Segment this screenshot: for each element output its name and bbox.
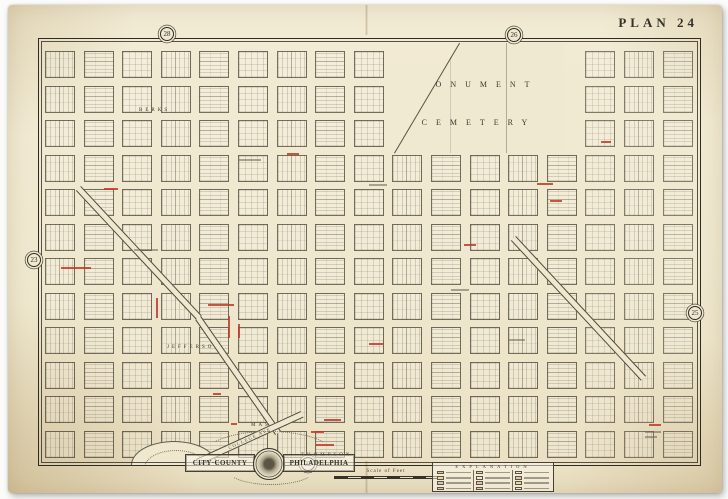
city-block [663,189,693,216]
city-block [277,293,307,320]
city-block [199,258,229,285]
red-annotation [369,343,383,345]
city-block [122,362,152,389]
city-block [84,155,114,182]
city-block [199,51,229,78]
city-block [238,189,268,216]
city-block [585,155,615,182]
building-label [239,159,261,161]
city-block [84,51,114,78]
city-block [161,224,191,251]
city-block [392,362,422,389]
city-block [84,293,114,320]
city-block [238,224,268,251]
legend-entry [515,471,549,475]
city-block [585,396,615,423]
red-annotation [464,244,476,246]
city-block [238,120,268,147]
city-block [315,224,345,251]
city-block [277,86,307,113]
city-block [547,189,577,216]
city-block [470,189,500,216]
legend-swatch [437,471,444,475]
city-block [277,224,307,251]
legend-swatch [515,481,522,485]
city-block [663,120,693,147]
city-block [663,155,693,182]
city-block [585,224,615,251]
city-block [315,51,345,78]
red-annotation [104,188,118,190]
adjacent-plate-25: 25 [688,306,702,320]
city-block [45,51,75,78]
scale-bar [334,476,438,479]
cartouche-city-county: CITY·COUNTY [186,455,254,471]
philadelphia-seal [253,448,285,480]
city-block [431,396,461,423]
city-block [277,362,307,389]
city-block [354,155,384,182]
legend-entry-text [446,477,471,479]
city-block [663,327,693,354]
scale-label: Scale of Feet [334,469,438,474]
city-block [277,155,307,182]
city-block [238,51,268,78]
legend-swatch [476,471,483,475]
city-block [392,327,422,354]
legend-entry [476,481,510,485]
legend-swatch [476,487,483,491]
city-block [161,155,191,182]
red-annotation [601,141,611,143]
city-block [238,293,268,320]
building-label [645,431,661,433]
city-block [508,189,538,216]
city-block [392,431,422,458]
legend-entry [515,481,549,485]
city-block [624,396,654,423]
city-block [663,362,693,389]
cemetery-label-line2: CEMETERY [394,118,564,127]
city-block [508,155,538,182]
legend-entry [437,476,471,480]
city-block [508,431,538,458]
city-block [354,293,384,320]
legend-columns [435,470,551,491]
adjacent-plate-26: 26 [507,28,521,42]
city-block [84,396,114,423]
city-block [585,51,615,78]
city-block [199,155,229,182]
city-block [547,327,577,354]
red-annotation [208,304,234,306]
city-block [315,189,345,216]
legend-column [513,470,551,491]
legend-column [474,470,513,491]
city-block [122,51,152,78]
legend-swatch [515,471,522,475]
city-block [508,396,538,423]
city-block [431,189,461,216]
city-block [277,120,307,147]
red-annotation [231,423,237,425]
city-block [392,396,422,423]
city-block [547,362,577,389]
paper-fold-crease [365,5,368,35]
legend-entry [476,487,510,491]
city-block [199,362,229,389]
building-label [451,289,469,291]
red-annotation [238,324,240,338]
city-block [547,396,577,423]
city-block [84,86,114,113]
city-block [315,293,345,320]
city-block [470,224,500,251]
legend-swatch [476,481,483,485]
city-block [45,155,75,182]
red-annotation [61,267,91,269]
city-block [354,189,384,216]
city-block [392,155,422,182]
city-block [199,396,229,423]
city-block [431,293,461,320]
cemetery-label-line1: MONUMENT [394,80,564,89]
city-block [547,224,577,251]
city-block [45,362,75,389]
legend-swatch [437,476,444,480]
legend-entry-text [485,482,510,484]
legend-entry-text [446,488,471,490]
city-block [663,86,693,113]
city-block [277,258,307,285]
city-block [624,155,654,182]
city-block [354,224,384,251]
city-block [624,258,654,285]
red-annotation [311,431,324,433]
building-label [134,249,158,251]
city-block [585,258,615,285]
legend-entry [476,476,510,480]
city-block [45,189,75,216]
city-block [84,327,114,354]
city-block [470,362,500,389]
city-block [547,431,577,458]
legend-entry [476,471,510,475]
city-block [45,431,75,458]
red-annotation [228,316,230,338]
city-block [315,155,345,182]
atlas-scan: PLAN 24 MONUMENT CEMETERY BERKS JEFFERSO… [0,0,728,499]
legend-entry-text [524,472,549,474]
city-block [585,362,615,389]
red-annotation [316,444,334,446]
city-block [354,327,384,354]
city-block [238,258,268,285]
legend-entry-text [485,477,510,479]
map-frame: MONUMENT CEMETERY BERKS JEFFERSON MASTER… [38,38,701,466]
city-block [199,224,229,251]
red-annotation [213,393,221,395]
adjacent-plate-23: 23 [27,253,41,267]
city-block [431,327,461,354]
city-block [161,189,191,216]
city-block [122,120,152,147]
legend-title: EXPLANATION [435,464,551,469]
city-block [45,327,75,354]
city-block [624,120,654,147]
adjacent-plate-28: 28 [160,27,174,41]
legend-swatch [476,476,483,480]
city-block [470,258,500,285]
city-block [624,224,654,251]
city-block [315,362,345,389]
red-annotation [649,424,661,426]
legend-swatch [515,487,522,491]
city-block [45,293,75,320]
city-block [122,189,152,216]
city-block [624,327,654,354]
city-block [122,155,152,182]
city-block [508,293,538,320]
city-block [585,86,615,113]
city-block [585,189,615,216]
red-annotation [287,153,299,155]
city-block [585,431,615,458]
city-block [354,120,384,147]
city-block [431,224,461,251]
city-block [624,189,654,216]
legend-entry-text [446,482,471,484]
city-block [277,327,307,354]
city-block [161,51,191,78]
city-block [663,431,693,458]
city-block [315,120,345,147]
city-block [161,120,191,147]
legend-entry-text [485,472,510,474]
legend-swatch [515,476,522,480]
city-block [277,189,307,216]
city-block [45,120,75,147]
legend-swatch [437,487,444,491]
city-block [470,327,500,354]
city-block [238,86,268,113]
city-block [122,327,152,354]
legend-entry [515,476,549,480]
city-block [84,258,114,285]
scale-bar-group: Scale of Feet [334,469,438,479]
city-block [470,293,500,320]
city-block [431,362,461,389]
city-block [508,362,538,389]
legend-entry-text [446,472,471,474]
city-block [392,224,422,251]
city-block [199,189,229,216]
city-block [199,120,229,147]
city-block [663,396,693,423]
city-block [277,51,307,78]
city-block [315,86,345,113]
city-block [45,396,75,423]
legend-swatch [437,481,444,485]
city-block [45,86,75,113]
city-block [161,396,191,423]
red-annotation [156,298,158,318]
city-block [122,396,152,423]
building-label [509,339,525,341]
city-block [354,431,384,458]
legend-entry [437,487,471,491]
city-block [161,362,191,389]
building-label [369,184,387,186]
city-block [470,431,500,458]
city-block [84,431,114,458]
city-block [392,189,422,216]
city-block [315,258,345,285]
plate-title: PLAN 24 [618,15,698,31]
city-block [470,155,500,182]
city-block [392,293,422,320]
city-block [431,258,461,285]
legend-entry-text [524,477,549,479]
red-annotation [537,183,553,185]
red-annotation [324,419,341,421]
city-block [354,258,384,285]
city-block [431,431,461,458]
legend-entry-text [524,482,549,484]
legend-box: EXPLANATION [432,462,554,492]
city-block [238,327,268,354]
street-label-berks: BERKS [139,108,170,113]
city-block [663,224,693,251]
city-block [624,51,654,78]
city-block [84,224,114,251]
city-block [84,362,114,389]
city-block [199,293,229,320]
city-block [354,362,384,389]
legend-entry-text [485,488,510,490]
city-block [45,224,75,251]
city-block [354,396,384,423]
city-block [122,293,152,320]
city-block [354,86,384,113]
city-block [392,258,422,285]
legend-entry-text [524,488,549,490]
city-block [624,293,654,320]
legend-entry [437,471,471,475]
city-block [624,86,654,113]
atlas-page: PLAN 24 MONUMENT CEMETERY BERKS JEFFERSO… [8,5,722,493]
city-block [84,120,114,147]
city-block [663,51,693,78]
city-block [547,155,577,182]
building-label [645,436,657,438]
legend-entry [437,481,471,485]
red-annotation [550,200,562,202]
city-block [354,51,384,78]
monument-cemetery-area: MONUMENT CEMETERY [394,43,564,153]
legend-entry [515,487,549,491]
city-block [315,327,345,354]
legend-column [435,470,474,491]
city-block [45,258,75,285]
city-block [199,86,229,113]
city-block [663,258,693,285]
city-block [470,396,500,423]
city-block [431,155,461,182]
